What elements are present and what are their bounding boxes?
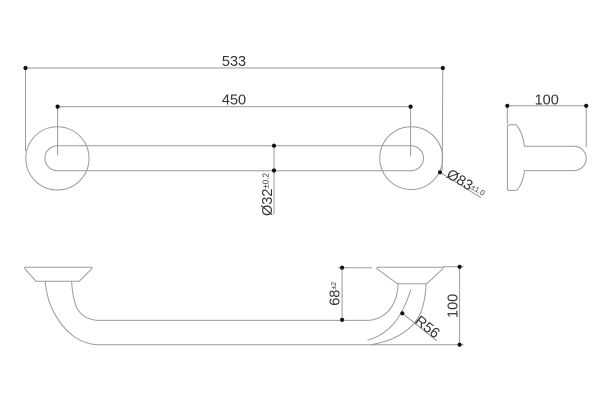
svg-text:100: 100 bbox=[445, 294, 461, 318]
svg-text:450: 450 bbox=[222, 93, 246, 109]
svg-text:R56: R56 bbox=[412, 313, 443, 342]
svg-text:Ø83±1.0: Ø83±1.0 bbox=[444, 167, 488, 202]
svg-text:68±2: 68±2 bbox=[328, 282, 344, 306]
svg-text:533: 533 bbox=[222, 54, 246, 70]
svg-text:100: 100 bbox=[535, 93, 559, 109]
